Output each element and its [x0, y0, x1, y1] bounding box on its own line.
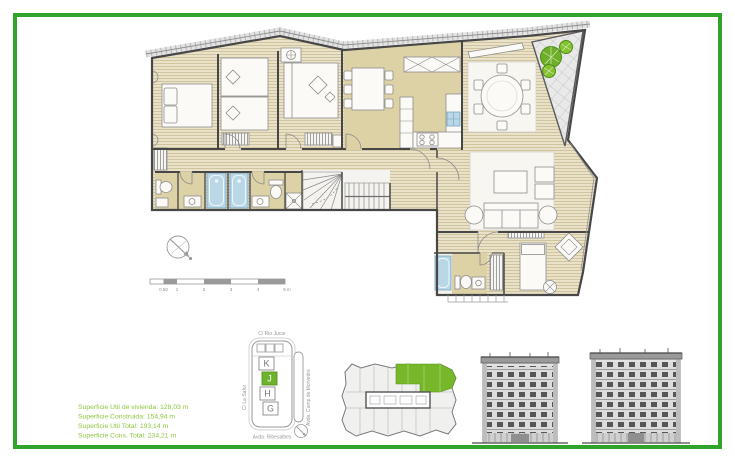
- surface-line-3: Superficie Util Total: 193,14 m: [78, 423, 169, 430]
- key-plan-wing: [294, 352, 303, 422]
- street-label-right: Avda. Camp de Morvedre: [306, 369, 312, 426]
- scale-label: 3: [230, 287, 233, 292]
- scale-label: 1: [176, 287, 179, 292]
- block-letter: H: [264, 389, 271, 399]
- compass-icon: [167, 236, 192, 260]
- surface-line-4: Superficie Cons. Total: 234,21 m: [78, 433, 176, 440]
- block-letter: K: [263, 359, 269, 369]
- block-letter: G: [267, 404, 274, 414]
- street-label-left: C/ La Safor: [242, 384, 248, 410]
- elevation-front: [472, 352, 568, 443]
- scale-label: 4: [257, 287, 260, 292]
- scale-label: 5 m: [283, 287, 291, 292]
- site-footprint: [342, 364, 456, 436]
- street-label-bottom: Avda. Ribesalbes: [253, 435, 292, 441]
- key-plan: K J H G C/ Rio Jucar Avda. Ribesalbes C/…: [242, 331, 312, 441]
- surface-info: Superficie Util de vivienda: 128,03 m Su…: [78, 404, 189, 440]
- stair-floor: [303, 170, 390, 210]
- key-plan-compass-icon: [295, 425, 308, 438]
- plan-canvas: 0.50 1 2 3 4 5 m Superficie Util de vivi…: [0, 0, 735, 462]
- scale-bar: 0.50 1 2 3 4 5 m: [150, 279, 291, 292]
- surface-line-2: Superficie Construida: 154,94 m: [78, 414, 175, 421]
- surface-line-1: Superficie Util de vivienda: 128,03 m: [78, 404, 189, 411]
- elevation-side: [582, 348, 690, 443]
- block-letter-highlighted: J: [267, 374, 272, 384]
- street-label-top: C/ Rio Jucar: [258, 331, 286, 337]
- footprint-core: [366, 392, 430, 408]
- dining-furniture: [344, 68, 393, 110]
- scale-label: 2: [203, 287, 206, 292]
- key-plan-top-units: [257, 344, 283, 352]
- scale-label: 0.50: [159, 287, 168, 292]
- floor-plan: 0.50 1 2 3 4 5 m: [146, 24, 597, 302]
- plan-sheet: 0.50 1 2 3 4 5 m Superficie Util de vivi…: [0, 0, 735, 462]
